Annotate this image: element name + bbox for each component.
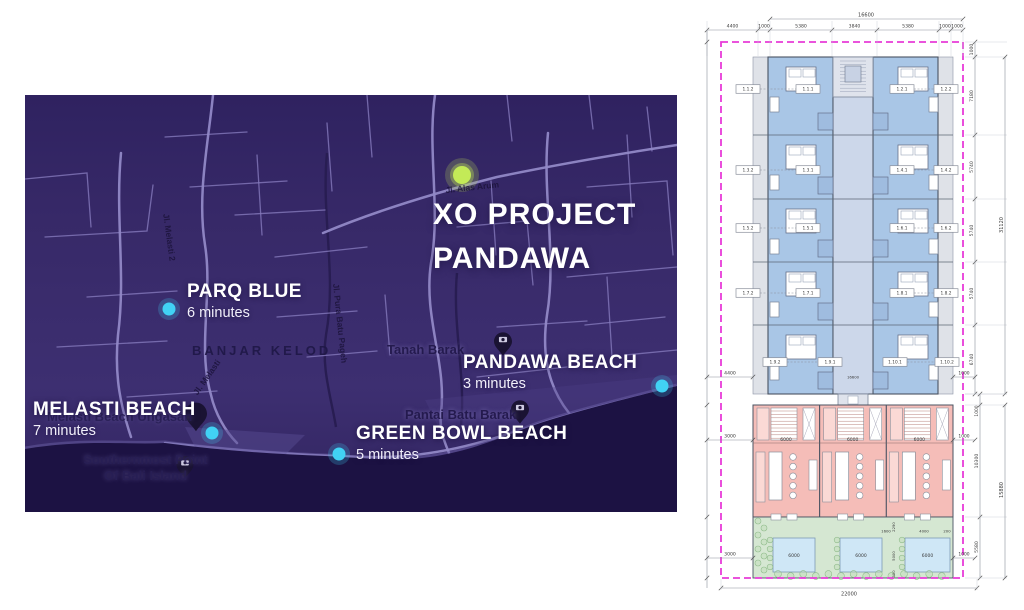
dimension-label: 1000 [969, 44, 975, 56]
dimension-label: 16600 [847, 375, 860, 380]
dimension-label: 5380 [902, 24, 914, 30]
dimension-label: 1.6.2 [941, 226, 952, 232]
dimension-label: 1000 [958, 371, 969, 377]
dimension-label: 200 [943, 529, 951, 534]
dimension-label: 4400 [727, 24, 739, 30]
dimension-label: 5000 [891, 551, 896, 561]
dimension-label: 1000 [958, 552, 969, 558]
slide: XO PROJECT PANDAWA PARQ BLUE 6 minutes M… [0, 0, 1024, 610]
marker-time: 3 minutes [463, 376, 637, 392]
floor-plan-drawing: 6000600060006000600060001660044001000538… [705, 13, 1007, 598]
dimension-label: 1.5.2 [743, 226, 754, 232]
dimension-label: 16600 [858, 13, 874, 19]
dimension-label: 2290 [891, 522, 896, 532]
dimension-label: 7180 [969, 90, 975, 102]
dimension-label: 1000 [939, 24, 951, 30]
floor-plan-canvas: 6000600060006000600060001660044001000538… [690, 0, 1024, 610]
parq-blue-dot [158, 298, 180, 320]
dimension-label: 4000 [919, 529, 929, 534]
melasti-beach-dot [201, 422, 223, 444]
marker-name: PARQ BLUE [187, 281, 302, 303]
dimension-label: 6740 [969, 354, 975, 366]
dimension-label: 3840 [849, 24, 861, 30]
dimension-label: 1.3.2 [743, 168, 754, 174]
dimension-label: 300 [891, 570, 896, 578]
marker-name: PANDAWA BEACH [463, 352, 637, 374]
dimension-label: 1.1.2 [743, 87, 754, 93]
dimension-label: 6000 [847, 437, 859, 443]
map-canvas [25, 95, 677, 512]
pandawa-beach-dot [651, 375, 673, 397]
dimension-label: 1.10.1 [888, 360, 902, 366]
marker-time: 6 minutes [187, 305, 302, 321]
project-title: XO PROJECT PANDAWA [433, 193, 636, 281]
dimension-label: 6000 [855, 553, 867, 559]
dimension-label: 1.9.1 [825, 360, 836, 366]
dimension-label: 1.7.1 [803, 291, 814, 297]
dimension-label: 1000 [951, 24, 963, 30]
marker-name: GREEN BOWL BEACH [356, 423, 567, 445]
dimension-label: 3000 [724, 552, 736, 558]
dimension-label: 1.4.2 [941, 168, 952, 174]
marker-time: 5 minutes [356, 447, 567, 463]
dimension-label: 6000 [788, 553, 800, 559]
map-marker-melasti-beach: MELASTI BEACH 7 minutes [33, 399, 196, 439]
dimension-label: 10300 [974, 454, 980, 469]
place-label-pantai-batu-barak: Pantai Batu Barak [405, 407, 516, 422]
dimension-label: 1.2.1 [897, 87, 908, 93]
dimension-label: 6000 [780, 437, 792, 443]
dimension-label: 1000 [974, 405, 980, 416]
dimension-label: 1.8.1 [897, 291, 908, 297]
dimension-label: 4400 [724, 371, 736, 377]
dimension-label: 1000 [958, 434, 969, 440]
floor-plan: 6000600060006000600060001660044001000538… [690, 0, 1024, 610]
dimension-label: 1.2.2 [941, 87, 952, 93]
dimension-label: 1.1.1 [803, 87, 814, 93]
dimension-label: 22000 [841, 592, 857, 598]
dimension-label: 1.3.1 [803, 168, 814, 174]
dimension-label: 1000 [758, 24, 770, 30]
dimension-label: 1.7.2 [743, 291, 754, 297]
place-label-southernmost-2: Of Bali Island [73, 468, 218, 483]
dimension-label: 5380 [795, 24, 807, 30]
place-label-banjar-kelod: BANJAR KELOD [192, 343, 331, 358]
place-label-tanah-barak: Tanah Barak [387, 342, 464, 357]
marker-time: 7 minutes [33, 423, 196, 439]
dimension-label: 3000 [724, 434, 736, 440]
map-marker-pandawa-beach: PANDAWA BEACH 3 minutes [463, 352, 637, 392]
dimension-label: 1.5.1 [803, 226, 814, 232]
dimension-label: 1.9.2 [770, 360, 781, 366]
dimension-label: 6000 [922, 553, 934, 559]
dimension-label: 1600 [881, 529, 891, 534]
project-title-line2: PANDAWA [433, 237, 636, 281]
dimension-label: 1.4.1 [897, 168, 908, 174]
map-marker-green-bowl-beach: GREEN BOWL BEACH 5 minutes [356, 423, 567, 463]
dimension-label: 1.6.1 [897, 226, 908, 232]
dimension-label: 5580 [974, 541, 980, 553]
place-label-southernmost-1: Southernmost Point [73, 452, 218, 467]
dimension-label: 5740 [969, 161, 975, 173]
dimension-label: 15880 [999, 482, 1005, 498]
dimension-label: 1.10.2 [940, 360, 954, 366]
dimension-label: 31120 [999, 217, 1005, 233]
green-bowl-beach-dot [328, 443, 350, 465]
dimension-label: 5740 [969, 288, 975, 300]
dimension-label: 1.8.2 [941, 291, 952, 297]
project-title-line1: XO PROJECT [433, 193, 636, 237]
marker-name: MELASTI BEACH [33, 399, 196, 421]
dimension-label: 6000 [914, 437, 926, 443]
map-marker-parq-blue: PARQ BLUE 6 minutes [187, 281, 302, 321]
dimension-label: 5740 [969, 225, 975, 237]
location-map: XO PROJECT PANDAWA PARQ BLUE 6 minutes M… [25, 95, 677, 512]
